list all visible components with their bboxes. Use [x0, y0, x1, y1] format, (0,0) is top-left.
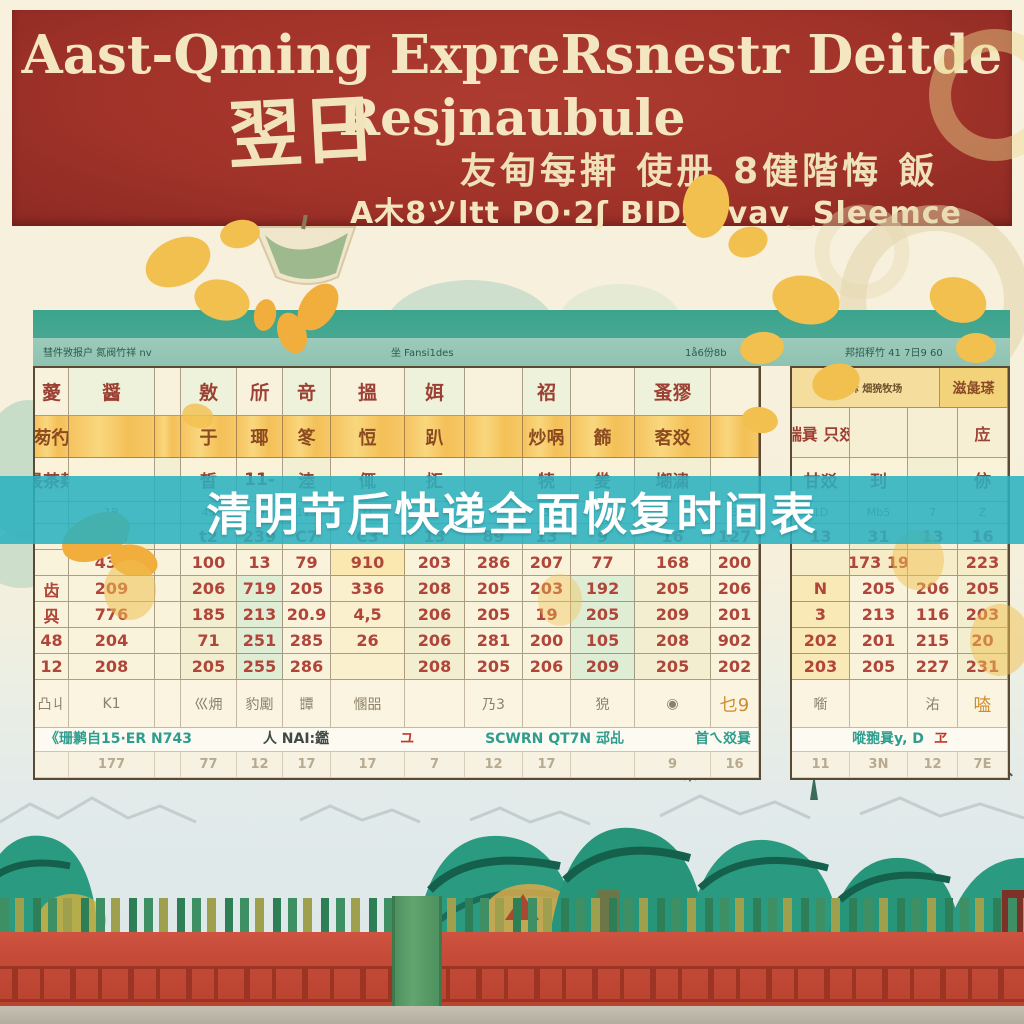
- table-cell: 231: [958, 654, 1008, 680]
- table-cell: [155, 416, 181, 458]
- table-cell: 茐彴: [35, 416, 69, 458]
- table-cell: 200: [523, 628, 571, 654]
- table-cell: 208: [405, 654, 465, 680]
- table-row: 113N127E: [792, 752, 1008, 778]
- table-row: 凸丩K1巛㶲豹㔉㽑㥵㗊乃3㹸◉乜9: [35, 680, 759, 728]
- table-cell: 㹸: [571, 680, 635, 728]
- fence-wall: [0, 932, 1024, 1010]
- table-cell: 910: [331, 550, 405, 576]
- table-cell: 㛅: [405, 368, 465, 416]
- table-cell: 192: [571, 576, 635, 602]
- table-row: 薆醤敫斦竒搵㛅祒蚤㺒: [35, 368, 759, 416]
- table-cell: 趴: [405, 416, 465, 458]
- main-schedule-table: 薆醤敫斦竒搵㛅祒蚤㺒茐彴于瑘笗㤱趴炒㖞籂㚚㸚晸茶觌皙11-淕㑙㧟㸿夎㙟㴋1B45…: [33, 366, 761, 780]
- table-cell: [465, 416, 523, 458]
- table-cell: 20: [958, 628, 1008, 654]
- table-row: 1777712171771217916: [35, 752, 759, 778]
- table-cell: 336: [331, 576, 405, 602]
- table-cell: 㟨㠱 只㸚: [792, 408, 850, 458]
- table-cell: 203: [405, 550, 465, 576]
- table-cell: 巛㶲: [181, 680, 237, 728]
- table-cell: [465, 368, 523, 416]
- table-cell: ◉: [635, 680, 711, 728]
- green-pillar: [392, 896, 442, 1012]
- table-cell: 209: [635, 602, 711, 628]
- table-cell: [850, 408, 908, 458]
- table-cell: 205: [571, 602, 635, 628]
- table-cell: 205: [958, 576, 1008, 602]
- mountains-icon: [0, 796, 1024, 824]
- strip-text: ユ: [400, 728, 414, 748]
- table-cell: [155, 576, 181, 602]
- table-cell: 薆: [35, 368, 69, 416]
- table-cell: 19: [523, 602, 571, 628]
- table-cell: 208: [69, 654, 155, 680]
- table-cell: 77: [181, 752, 237, 778]
- band-label: 1å6份8b: [685, 344, 727, 359]
- title-banner: Aast-Qming ExpreRsnestr Deitde Resjnaubu…: [12, 10, 1012, 226]
- table-cell: 3: [792, 602, 850, 628]
- table-cell: 滋彘瑹: [940, 368, 1008, 408]
- table-cell: 203: [523, 576, 571, 602]
- table-cell: 173 19: [850, 550, 908, 576]
- table-cell: 206: [405, 602, 465, 628]
- poster-title-line1: Aast-Qming ExpreRsnestr Deitde: [12, 24, 1012, 86]
- table-cell: 17: [523, 752, 571, 778]
- strip-text: 㗰䎂㠱y, D: [852, 728, 924, 748]
- strip-text: SCWRN QT7N 䢵乩: [485, 728, 624, 748]
- table-cell: 201: [711, 602, 759, 628]
- table-cell: 202: [711, 654, 759, 680]
- table-cell: 223: [958, 550, 1008, 576]
- table-cell: 豹㔉: [237, 680, 283, 728]
- table-cell: [155, 368, 181, 416]
- table-cell: [523, 680, 571, 728]
- table-cell: 208: [635, 628, 711, 654]
- table-cell: 71: [181, 628, 237, 654]
- table-cell: 251: [237, 628, 283, 654]
- table-cell: 12: [908, 752, 958, 778]
- table-cell: 瑘: [237, 416, 283, 458]
- table-row: 20220121520: [792, 628, 1008, 654]
- table-cell: 笗: [283, 416, 331, 458]
- band-label: 彗件敩报户 氮阀竹祥 nv: [43, 344, 152, 359]
- table-cell: 205: [850, 576, 908, 602]
- table-row: 齿209206719205336208205203192205206: [35, 576, 759, 602]
- table-cell: 祒: [523, 368, 571, 416]
- table-cell: 902: [711, 628, 759, 654]
- table-cell: 齿: [35, 576, 69, 602]
- table-cell: 208: [405, 576, 465, 602]
- table-cell: 206: [181, 576, 237, 602]
- table-cell: [69, 416, 155, 458]
- table-cell: [35, 752, 69, 778]
- table-cell: 213: [237, 602, 283, 628]
- table-cell: 201: [850, 628, 908, 654]
- banner-subtitle-en: A木8ツltt PO·2ʃ BIDAevav ͜ Sleemce: [350, 188, 962, 232]
- table-cell: 227: [908, 654, 958, 680]
- table-cell: [711, 416, 759, 458]
- band-label: 坐 Fansi1des: [391, 344, 454, 359]
- table-cell: 168: [635, 550, 711, 576]
- table-cell: 205: [465, 576, 523, 602]
- table-cell: 㘅: [792, 680, 850, 728]
- table-cell: 㗐: [958, 680, 1008, 728]
- table-cell: [331, 654, 405, 680]
- table-cell: 205: [283, 576, 331, 602]
- table-cell: 12: [35, 654, 69, 680]
- table-cell: 213: [850, 602, 908, 628]
- table-row: 203205227231: [792, 654, 1008, 680]
- table-row: 173 19223: [792, 550, 1008, 576]
- table-header-band: [33, 310, 1010, 339]
- highlight-banner-title: 清明节后快递全面恢复时间表: [206, 478, 817, 543]
- table-cell: 斦: [237, 368, 283, 416]
- poster-title-line2: Resjnaubule: [12, 88, 1012, 147]
- table-cell: 100: [181, 550, 237, 576]
- table-cell: 48: [35, 628, 69, 654]
- table-cell: K1: [69, 680, 155, 728]
- table-row: 傅汉稣 畑㹸牧场滋彘瑹: [792, 368, 1008, 408]
- table-cell: 281: [465, 628, 523, 654]
- table-cell: 206: [523, 654, 571, 680]
- table-cell: 7: [405, 752, 465, 778]
- table-cell: 206: [711, 576, 759, 602]
- table-cell: [571, 752, 635, 778]
- footer-strip-main: 《珊鹣自15·ER N743人 NAI:鑑ユSCWRN QT7N 䢵乩首ㄟ㸚㠱: [33, 726, 763, 750]
- table-cell: 乃3: [465, 680, 523, 728]
- table-cell: 200: [711, 550, 759, 576]
- table-cell: 敫: [181, 368, 237, 416]
- table-cell: 203: [958, 602, 1008, 628]
- table-cell: 13: [237, 550, 283, 576]
- table-cell: 16: [711, 752, 759, 778]
- table-cell: 搵: [331, 368, 405, 416]
- highlight-banner: 清明节后快递全面恢复时间表: [0, 476, 1024, 544]
- table-cell: [908, 550, 958, 576]
- table-cell: 185: [181, 602, 237, 628]
- table-header-labels: 彗件敩报户 氮阀竹祥 nv 坐 Fansi1des 1å6份8b 邦招稃竹 41…: [33, 338, 1010, 366]
- table-cell: 177: [69, 752, 155, 778]
- table-cell: [571, 368, 635, 416]
- footer-strip-right: 㗰䎂㠱y, Dヱ: [790, 726, 1010, 750]
- table-row: 茐彴于瑘笗㤱趴炒㖞籂㚚㸚: [35, 416, 759, 458]
- table-cell: 炒㖞: [523, 416, 571, 458]
- table-cell: [155, 628, 181, 654]
- table-cell: 116: [908, 602, 958, 628]
- fence-pattern: [0, 966, 1024, 1002]
- table-cell: 3N: [850, 752, 908, 778]
- table-row: N205206205: [792, 576, 1008, 602]
- table-cell: 205: [850, 654, 908, 680]
- table-cell: 凸丩: [35, 680, 69, 728]
- table-cell: 㽑: [283, 680, 331, 728]
- stamp-glyph: 翌日: [226, 92, 378, 174]
- table-row: 㒷77618521320.94,520620519205209201: [35, 602, 759, 628]
- table-cell: 籂: [571, 416, 635, 458]
- table-cell: 202: [792, 628, 850, 654]
- table-cell: [155, 680, 181, 728]
- table-cell: 竒: [283, 368, 331, 416]
- table-row: 㟨㠱 只㸚㡴: [792, 408, 1008, 458]
- table-cell: 432: [69, 550, 155, 576]
- table-cell: 209: [571, 654, 635, 680]
- table-cell: 㤱: [331, 416, 405, 458]
- strip-text: 《珊鹣自15·ER N743: [45, 728, 192, 748]
- table-cell: 286: [283, 654, 331, 680]
- table-cell: [908, 408, 958, 458]
- table-cell: 285: [283, 628, 331, 654]
- table-cell: 205: [465, 654, 523, 680]
- table-cell: 㥵㗊: [331, 680, 405, 728]
- table-cell: [711, 368, 759, 416]
- table-cell: [155, 752, 181, 778]
- table-cell: 776: [69, 602, 155, 628]
- table-cell: [155, 602, 181, 628]
- table-cell: N: [792, 576, 850, 602]
- table-cell: 7E: [958, 752, 1008, 778]
- table-cell: 㳓: [908, 680, 958, 728]
- table-cell: 215: [908, 628, 958, 654]
- table-cell: [155, 550, 181, 576]
- table-cell: 㒷: [35, 602, 69, 628]
- table-cell: 203: [792, 654, 850, 680]
- table-cell: 醤: [69, 368, 155, 416]
- table-cell: 105: [571, 628, 635, 654]
- table-cell: 209: [69, 576, 155, 602]
- table-cell: 17: [283, 752, 331, 778]
- table-cell: 255: [237, 654, 283, 680]
- strip-text: 人 NAI:鑑: [263, 728, 329, 748]
- table-cell: 12: [237, 752, 283, 778]
- strip-text: ヱ: [934, 728, 948, 748]
- poster-root: Aast-Qming ExpreRsnestr Deitde Resjnaubu…: [0, 0, 1024, 1024]
- table-cell: 17: [331, 752, 405, 778]
- table-cell: 204: [69, 628, 155, 654]
- table-cell: 20.9: [283, 602, 331, 628]
- table-cell: 205: [635, 576, 711, 602]
- table-cell: 乜9: [711, 680, 759, 728]
- table-cell: 79: [283, 550, 331, 576]
- table-row: 㘅㳓㗐: [792, 680, 1008, 728]
- table-cell: 26: [331, 628, 405, 654]
- table-cell: 4,5: [331, 602, 405, 628]
- table-cell: [35, 550, 69, 576]
- table-cell: 205: [635, 654, 711, 680]
- strip-text: 首ㄟ㸚㠱: [695, 728, 751, 748]
- table-cell: 于: [181, 416, 237, 458]
- table-cell: 9: [635, 752, 711, 778]
- table-cell: 㡴: [958, 408, 1008, 458]
- table-row: 482047125128526206281200105208902: [35, 628, 759, 654]
- table-cell: [405, 680, 465, 728]
- banner-subtitle-cn: 友甸每搟 使册 8健階悔 飯: [460, 142, 939, 194]
- table-cell: 206: [908, 576, 958, 602]
- table-cell: [850, 680, 908, 728]
- table-cell: 205: [465, 602, 523, 628]
- table-cell: 207: [523, 550, 571, 576]
- table-cell: [792, 550, 850, 576]
- table-row: 432100137991020328620777168200: [35, 550, 759, 576]
- table-cell: 77: [571, 550, 635, 576]
- table-cell: 㚚㸚: [635, 416, 711, 458]
- table-cell: 11: [792, 752, 850, 778]
- table-cell: 傅汉稣 畑㹸牧场: [792, 368, 940, 408]
- table-row: 3213116203: [792, 602, 1008, 628]
- table-cell: 286: [465, 550, 523, 576]
- table-cell: 206: [405, 628, 465, 654]
- table-cell: 蚤㺒: [635, 368, 711, 416]
- table-cell: [155, 654, 181, 680]
- table-cell: 719: [237, 576, 283, 602]
- table-cell: 12: [465, 752, 523, 778]
- ground-strip: [0, 1006, 1024, 1024]
- table-row: 12208205255286208205206209205202: [35, 654, 759, 680]
- band-label: 邦招稃竹 41 7日9 60: [845, 344, 943, 359]
- side-schedule-table: 傅汉稣 畑㹸牧场滋彘瑹㟨㠱 只㸚㡴甘㸚㺫㑊1DMb57Z13311316173 …: [790, 366, 1010, 780]
- table-cell: 205: [181, 654, 237, 680]
